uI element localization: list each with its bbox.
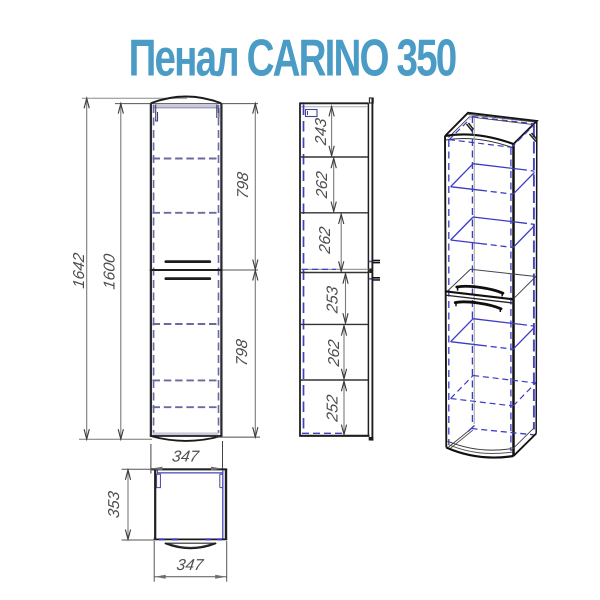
svg-text:1600: 1600	[101, 253, 118, 291]
svg-text:798: 798	[234, 338, 251, 367]
svg-text:253: 253	[325, 285, 342, 315]
svg-text:262: 262	[317, 226, 334, 256]
svg-text:798: 798	[235, 171, 252, 200]
svg-text:Пенал CARINO 350: Пенал CARINO 350	[129, 29, 456, 87]
svg-text:262: 262	[314, 170, 331, 200]
svg-text:347: 347	[171, 449, 201, 466]
svg-text:347: 347	[175, 557, 205, 574]
svg-text:353: 353	[106, 490, 123, 519]
svg-text:262: 262	[326, 338, 343, 368]
svg-text:252: 252	[325, 394, 342, 424]
svg-text:243: 243	[313, 117, 330, 147]
svg-text:1642: 1642	[71, 252, 88, 290]
